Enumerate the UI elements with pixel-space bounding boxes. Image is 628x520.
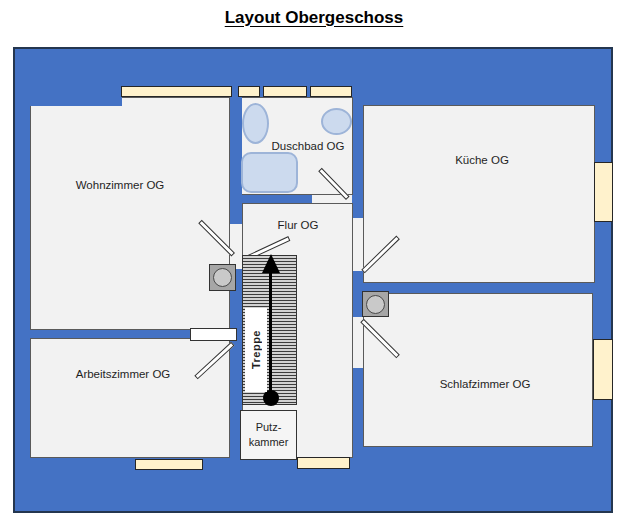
room-schlafzimmer — [363, 293, 593, 447]
sink-oval-icon — [321, 108, 352, 135]
column-circle-icon — [213, 268, 232, 287]
duschbad-label: Duschbad OG — [272, 140, 345, 152]
up-arrow-icon-start-dot — [263, 390, 279, 406]
chimney-column-icon-schlafzimmer — [362, 291, 389, 317]
wall-kueche-schlafzimmer — [363, 283, 595, 293]
room-putzkammer: Putz- kammer — [240, 410, 297, 460]
shower-tray-icon — [241, 152, 298, 193]
window-icon-duschbad-top-1 — [238, 86, 260, 97]
door-opening-flur-schlafzimmer — [353, 317, 363, 368]
putzkammer-label: Putz- kammer — [249, 420, 289, 450]
wohnzimmer-label: Wohnzimmer OG — [76, 179, 165, 191]
page-title: Layout Obergeschoss — [0, 8, 628, 28]
room-arbeitszimmer — [30, 338, 230, 458]
window-icon-flur-bottom — [297, 457, 350, 469]
up-arrow-icon-line — [269, 266, 272, 394]
schlafzimmer-label: Schlafzimmer OG — [440, 378, 531, 390]
chimney-column-icon-flur — [209, 264, 236, 291]
wall-wohnzimmer-notch — [29, 95, 122, 106]
window-icon-duschbad-top-2 — [263, 86, 307, 97]
window-icon-kueche-right — [594, 162, 613, 222]
window-icon-wohnzimmer-top — [121, 86, 232, 97]
wall-column-right — [353, 87, 363, 460]
kueche-label: Küche OG — [455, 154, 509, 166]
arbeitszimmer-label: Arbeitszimmer OG — [76, 368, 171, 380]
column-circle-icon — [366, 295, 385, 314]
flur-label: Flur OG — [278, 219, 319, 231]
door-opening-flur-kueche — [353, 218, 363, 271]
window-icon-arbeitszimmer-bottom — [135, 459, 203, 470]
window-icon-duschbad-top-3 — [310, 86, 352, 97]
room-kueche — [363, 105, 595, 283]
up-arrow-icon-head — [262, 254, 280, 273]
door-opening-wohnzimmer-flur — [230, 224, 242, 269]
floorplan-canvas: Layout Obergeschoss Treppe Putz- kammer — [0, 0, 628, 520]
bathtub-oval-icon — [242, 103, 269, 144]
treppe-label-box: Treppe — [245, 308, 267, 392]
window-icon-schlafzimmer-right — [593, 339, 613, 400]
door-opening-wohnzimmer-arbeitszimmer — [190, 328, 237, 341]
treppe-label: Treppe — [250, 330, 262, 369]
room-wohnzimmer — [30, 97, 230, 330]
